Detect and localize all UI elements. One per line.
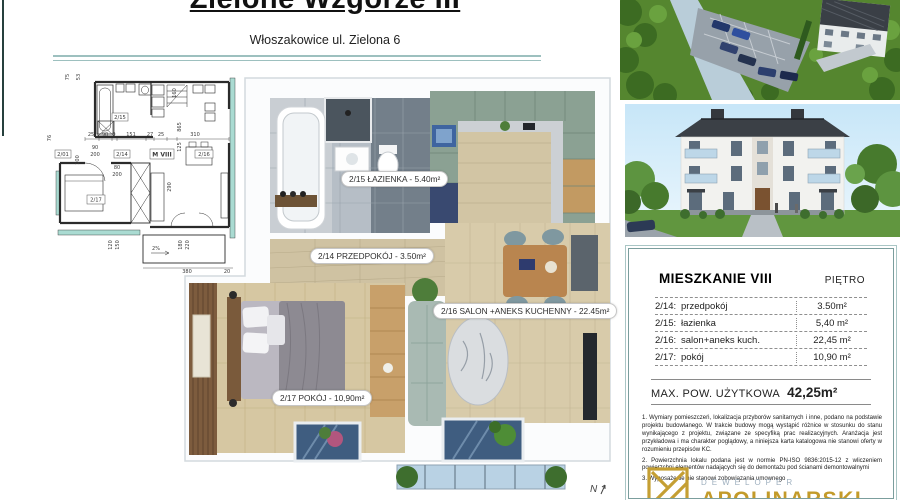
dim-label: 2% — [152, 246, 160, 252]
brand-text: DEWELOPER APOLINARSKI — [701, 478, 862, 499]
bathtub-symbol — [97, 85, 113, 134]
dim-label: 76 — [47, 135, 53, 141]
developer-brand: DEWELOPER APOLINARSKI — [645, 465, 862, 499]
toilet-symbol — [139, 84, 151, 95]
room-area-table: 2/14: przedpokój 3.50m² 2/15: łazienka 5… — [655, 297, 867, 366]
sofa-symbol — [151, 173, 164, 221]
dim-label: 200 — [90, 152, 100, 158]
dim-label: 27 — [147, 132, 153, 138]
door-arc — [85, 163, 105, 181]
total-area-row: MAX. POW. UŻYTKOWA 42,25m² — [651, 379, 871, 405]
row-code: 2/17: — [655, 352, 681, 363]
dim-label: 290 — [167, 182, 173, 192]
figure — [795, 204, 798, 213]
row-code: 2/14: — [655, 301, 681, 312]
dim-label: 151 — [126, 132, 136, 138]
header-divider — [53, 55, 541, 61]
bed-symbol — [65, 175, 103, 211]
dim-label: 75 — [65, 74, 71, 80]
card-header: MIESZKANIE VIII PIĘTRO — [659, 271, 865, 286]
plant — [412, 278, 438, 304]
floor-plan-render — [175, 63, 620, 497]
compass-arrow-icon — [598, 483, 608, 495]
sink-symbol — [116, 84, 124, 92]
total-area-value: 42,25m² — [787, 385, 837, 400]
brand-deweloper: DEWELOPER — [701, 478, 862, 487]
aerial-render — [620, 0, 900, 100]
compass: N — [590, 483, 608, 495]
row-name: salon+aneks kuch. — [681, 335, 796, 346]
bed-headboard — [227, 297, 241, 401]
fridge — [430, 183, 458, 223]
dim-label: 25 — [158, 132, 164, 138]
dim-label: 53 — [76, 74, 82, 80]
row-name: łazienka — [681, 318, 796, 329]
figure — [775, 203, 778, 213]
dim-label: 80 — [114, 165, 120, 171]
row-name: przedpokój — [681, 301, 796, 312]
apartment-info-card-inner: MIESZKANIE VIII PIĘTRO 2/14: przedpokój … — [628, 248, 894, 499]
row-area: 5,40 m² — [796, 318, 867, 329]
page-title: Zielone Wzgórze III — [55, 0, 595, 14]
floor-label: PIĘTRO — [825, 275, 865, 286]
kitchen-area — [430, 91, 595, 225]
wardrobe — [370, 285, 405, 417]
dining-chair — [504, 231, 526, 247]
building-front — [675, 109, 850, 215]
room-label-livingroom: 2/16 SALON +ANEKS KUCHENNY - 22.45m² — [433, 303, 617, 319]
kitchen-cabinets-top — [430, 91, 595, 121]
row-area: 3.50m² — [796, 301, 867, 312]
row-area: 10,90 m² — [796, 352, 867, 363]
bathroom-area — [270, 98, 430, 233]
dim-label: 120 — [108, 240, 114, 250]
wall-art — [193, 315, 210, 377]
unit-number: M VIII — [152, 152, 171, 159]
window-band — [58, 230, 140, 235]
sideboard — [571, 235, 598, 291]
table-row: 2/17: pokój 10,90 m² — [655, 349, 867, 366]
room-number: 2/15 — [114, 115, 126, 121]
dim-label: 200 — [112, 172, 122, 178]
dim-label: 90 — [102, 132, 108, 138]
row-area: 22,45 m² — [796, 335, 867, 346]
brand-name: APOLINARSKI — [701, 488, 862, 499]
bush — [396, 466, 418, 488]
dim-label: 150 — [115, 240, 121, 250]
dining-table — [503, 245, 567, 297]
kitchen-counter — [458, 121, 563, 132]
aerial-render-photo — [620, 0, 900, 100]
dim-label: 9 — [112, 132, 115, 138]
row-code: 2/15: — [655, 318, 681, 329]
table-row: 2/14: przedpokój 3.50m² — [655, 297, 867, 315]
disclaimer-1: 1. Wymiary pomieszczeń, lokalizacja przy… — [642, 415, 882, 455]
dim-label: 100 — [75, 155, 81, 165]
dim-label: 90 — [92, 145, 98, 151]
shower — [325, 98, 371, 142]
coffee-table — [448, 317, 508, 405]
room-number: 2/01 — [57, 152, 69, 158]
page-edge-line — [2, 0, 4, 136]
building-aerial — [817, 0, 890, 57]
room-number: 2/14 — [116, 152, 128, 158]
wardrobe-symbol — [131, 163, 150, 223]
table-row: 2/16: salon+aneks kuch. 22,45 m² — [655, 332, 867, 349]
dim-label: 25 — [88, 132, 94, 138]
room-label-bathroom: 2/15 ŁAZIENKA - 5.40m² — [341, 171, 448, 187]
apartment-title: MIESZKANIE VIII — [659, 271, 772, 286]
room-label-hallway: 2/14 PRZEDPOKÓJ - 3.50m² — [310, 248, 434, 264]
pillow — [242, 306, 269, 328]
elevation-render — [625, 104, 900, 237]
room-label-bedroom: 2/17 POKÓJ - 10,90m² — [272, 390, 372, 406]
total-area-label: MAX. POW. UŻYTKOWA — [651, 388, 780, 400]
catalog-page: Zielone Wzgórze III Włoszakowice ul. Zie… — [0, 0, 900, 500]
hall-bench — [275, 195, 317, 207]
page-subtitle: Włoszakowice ul. Zielona 6 — [55, 33, 595, 47]
pillow — [242, 332, 269, 353]
tv-panel — [583, 333, 597, 420]
dining-chair — [542, 229, 564, 245]
row-code: 2/16: — [655, 335, 681, 346]
room-number: 2/17 — [90, 198, 102, 204]
apartment-info-card: MIESZKANIE VIII PIĘTRO 2/14: przedpokój … — [625, 245, 897, 500]
compass-label: N — [590, 484, 597, 495]
table-row: 2/15: łazienka 5,40 m² — [655, 315, 867, 332]
balcony-railing — [397, 465, 565, 489]
developer-logo-icon — [645, 465, 691, 499]
row-name: pokój — [681, 352, 796, 363]
bush — [545, 466, 567, 488]
building-elevation-photo — [625, 104, 900, 237]
floor-plan-3d: 2/15 ŁAZIENKA - 5.40m² 2/14 PRZEDPOKÓJ -… — [175, 63, 620, 497]
